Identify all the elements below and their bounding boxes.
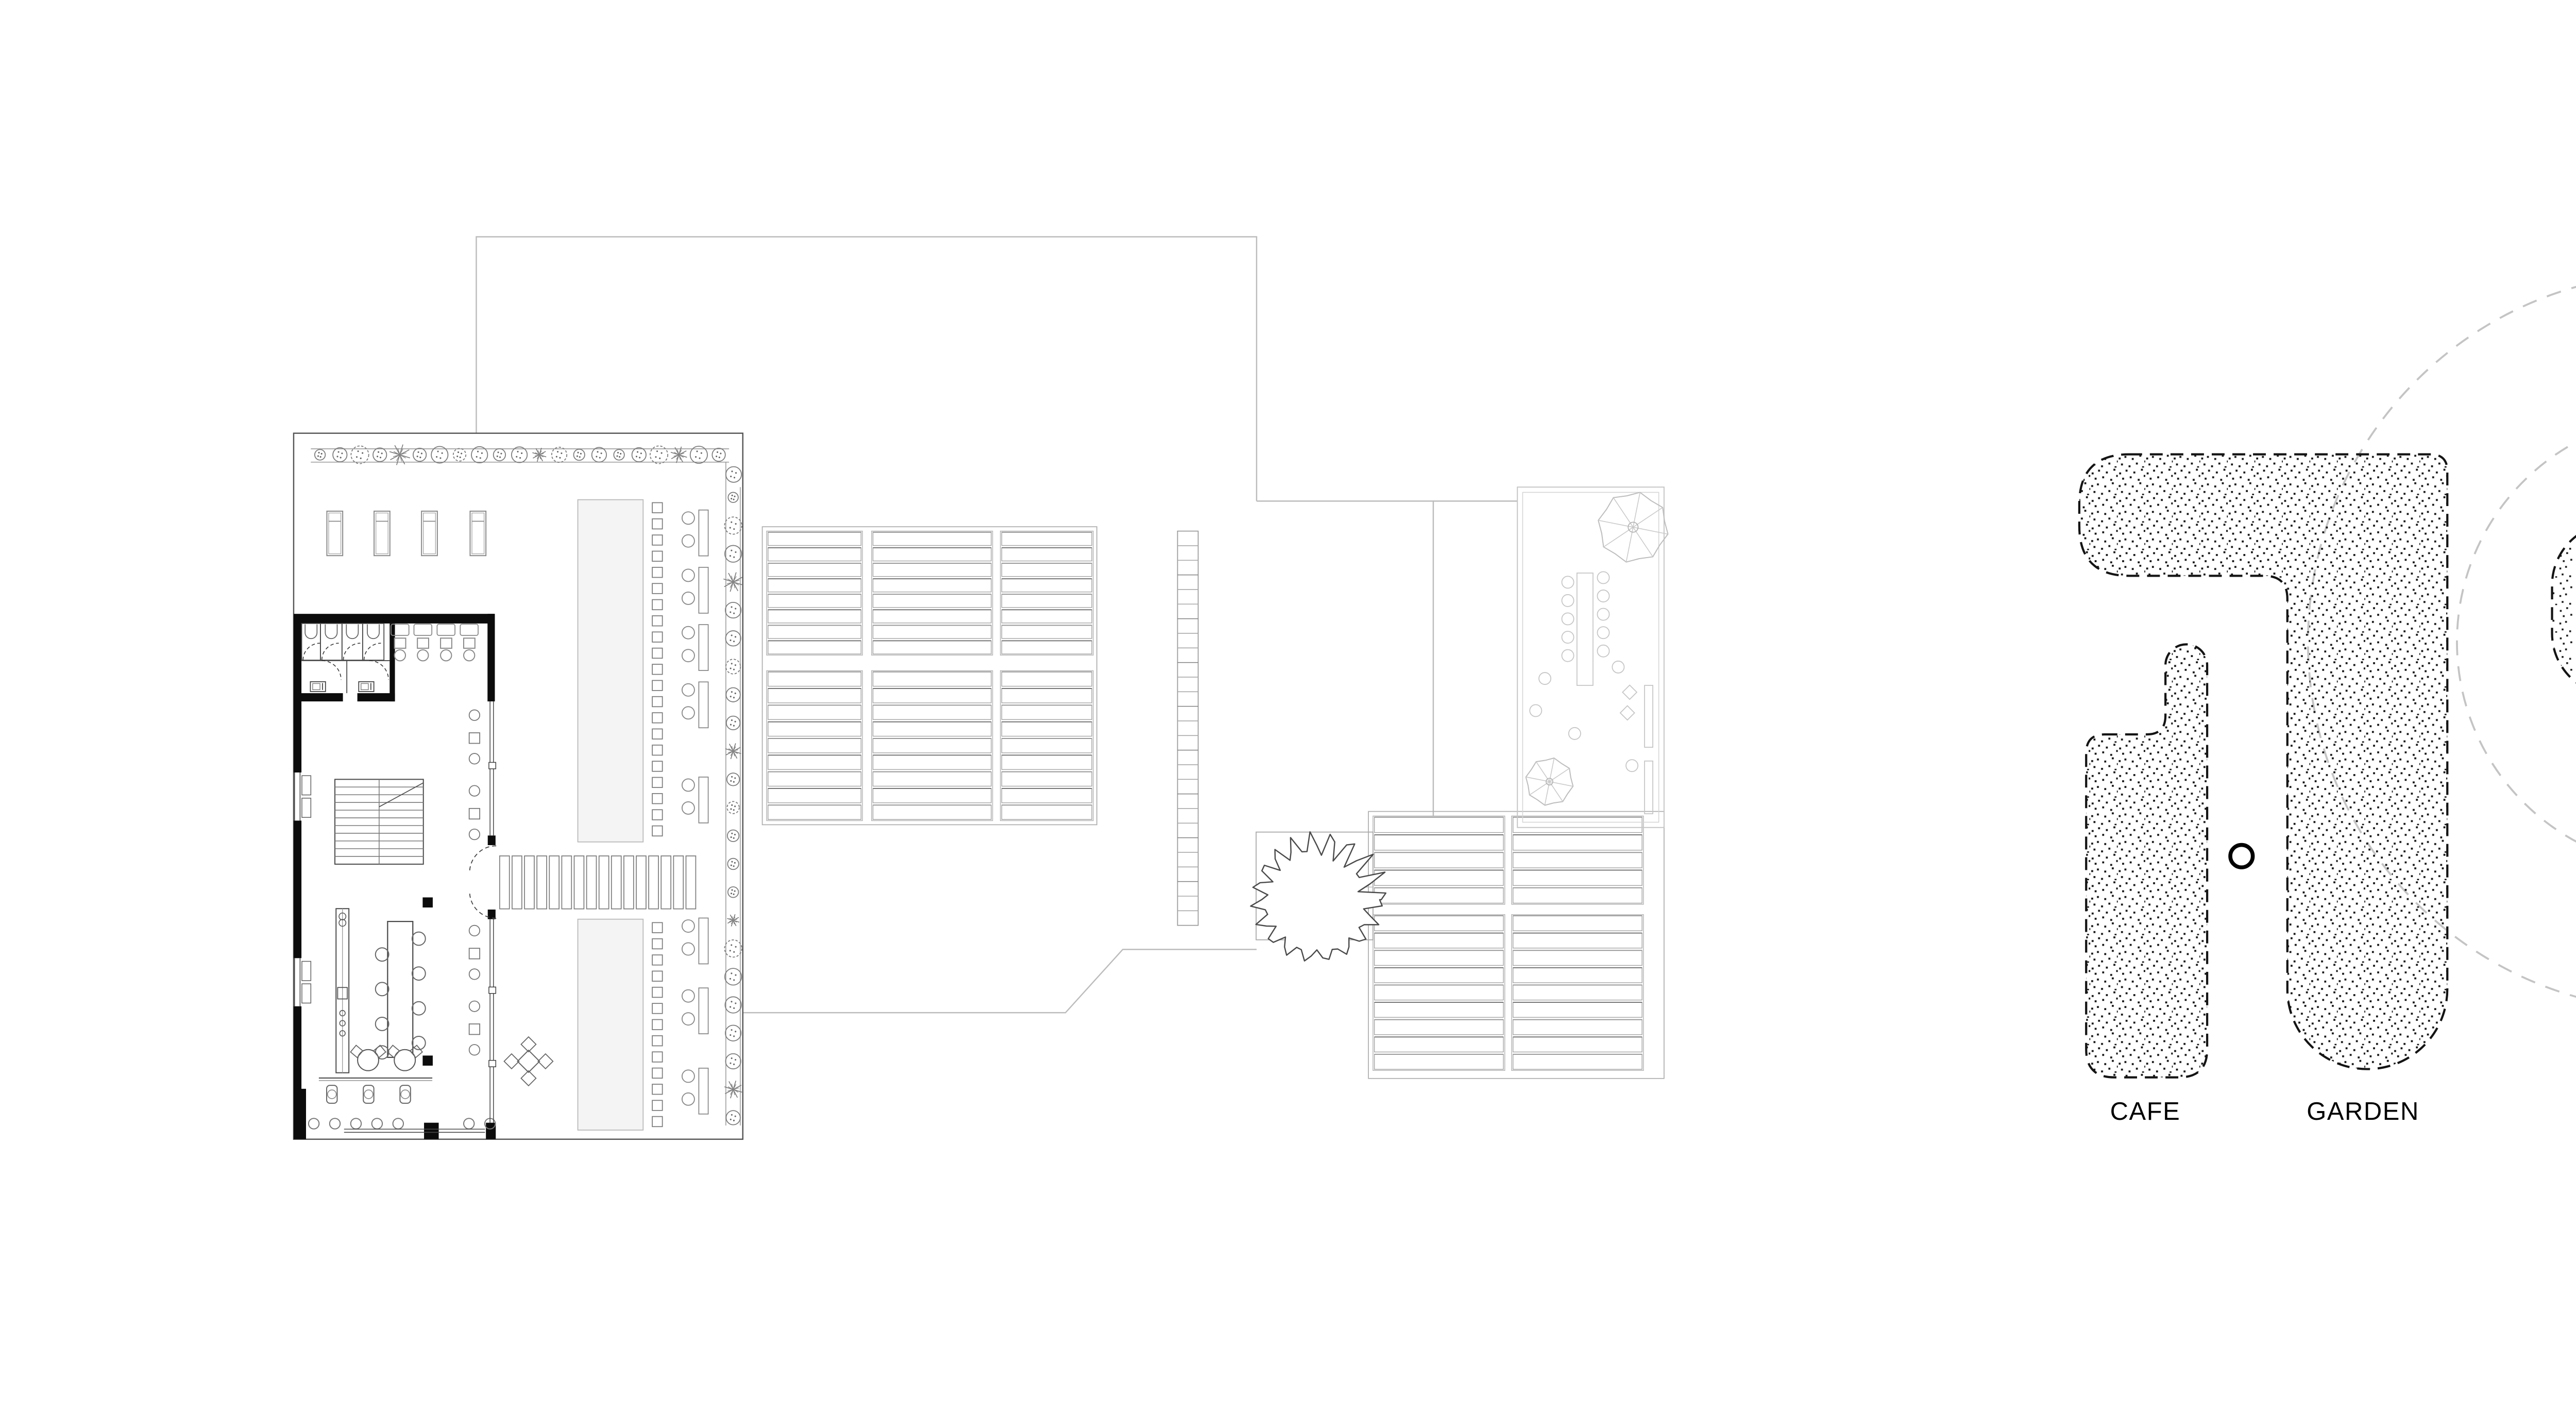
drawing-canvas: SKYLIGHT SKYLIGHT CAFE GARDEN (0, 0, 2576, 1412)
tree-planter (1250, 832, 1385, 961)
roof-terrace (1517, 487, 1668, 828)
label-garden: GARDEN (2307, 1098, 2419, 1125)
roof-louver-panels (762, 527, 1664, 1079)
floor-plan (294, 433, 743, 1139)
concept-diagram (2079, 273, 2576, 1077)
label-cafe: CAFE (2110, 1098, 2181, 1125)
